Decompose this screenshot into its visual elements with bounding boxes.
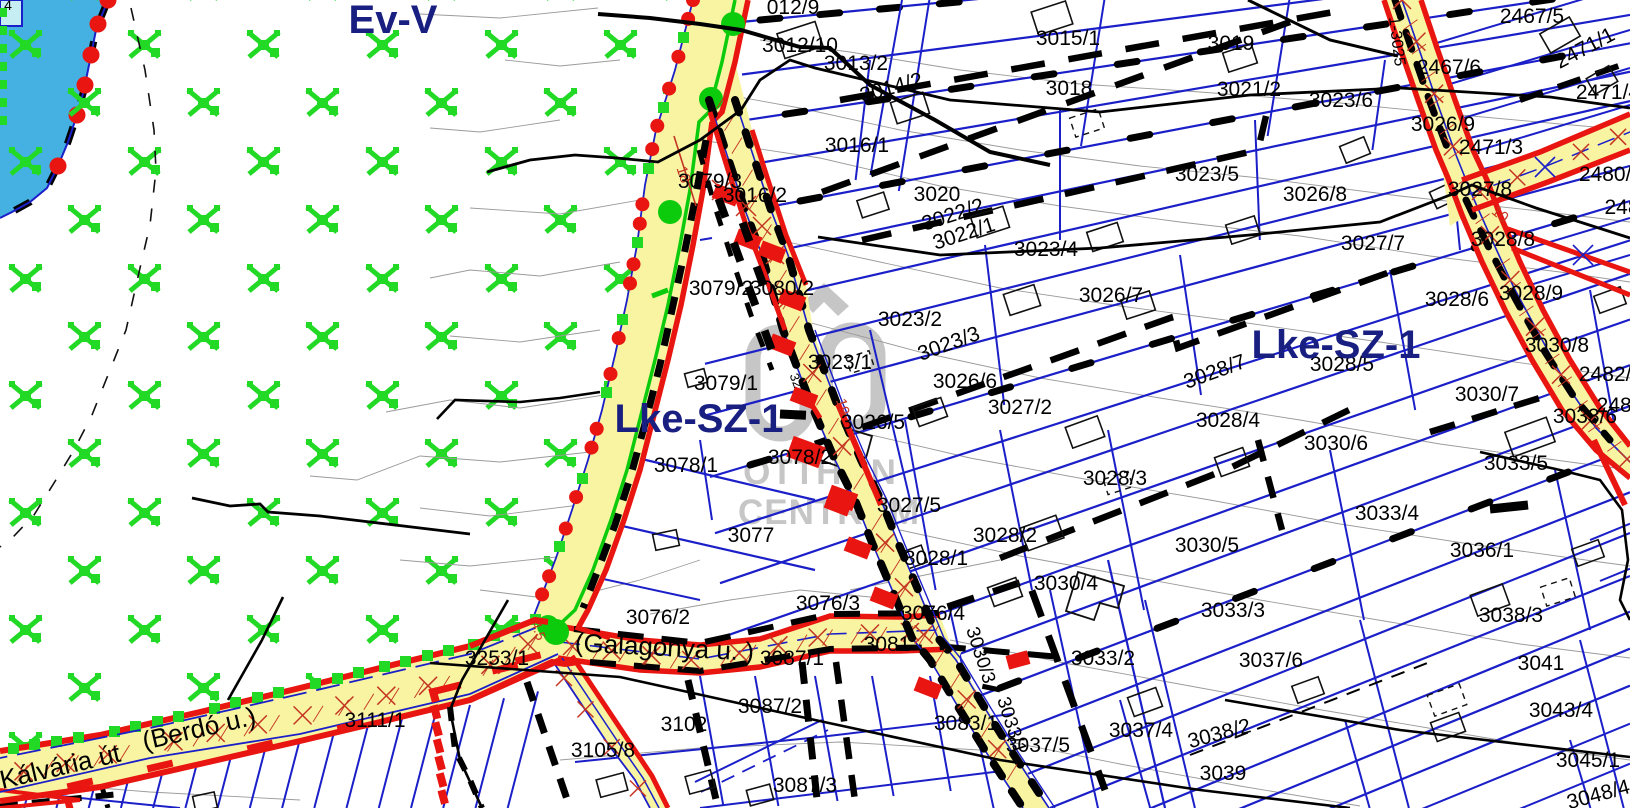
svg-text:3028/3: 3028/3 bbox=[1083, 467, 1147, 490]
svg-text:3083/1: 3083/1 bbox=[934, 712, 998, 735]
svg-text:3027/7: 3027/7 bbox=[1341, 232, 1405, 255]
svg-text:3028/4: 3028/4 bbox=[1196, 409, 1261, 432]
svg-text:3087/3: 3087/3 bbox=[773, 774, 837, 797]
svg-text:3021/2: 3021/2 bbox=[1217, 78, 1281, 101]
svg-text:3028/2: 3028/2 bbox=[973, 524, 1037, 547]
svg-text:3023/6: 3023/6 bbox=[1309, 89, 1373, 112]
svg-text:3077: 3077 bbox=[728, 524, 775, 547]
svg-text:3033/2: 3033/2 bbox=[1071, 647, 1135, 670]
svg-text:2471/3: 2471/3 bbox=[1459, 136, 1523, 159]
svg-text:3030/7: 3030/7 bbox=[1455, 383, 1519, 406]
svg-text:2467/6: 2467/6 bbox=[1417, 56, 1481, 79]
svg-text:3013/2: 3013/2 bbox=[824, 52, 888, 75]
svg-text:3030/5: 3030/5 bbox=[1175, 534, 1239, 557]
svg-text:2471/4: 2471/4 bbox=[1576, 81, 1630, 104]
svg-text:3078/1: 3078/1 bbox=[654, 454, 718, 477]
svg-text:3027/2: 3027/2 bbox=[988, 396, 1052, 419]
svg-text:3026/9: 3026/9 bbox=[1411, 113, 1475, 136]
svg-text:2467/5: 2467/5 bbox=[1500, 5, 1564, 28]
svg-text:3087/2: 3087/2 bbox=[738, 695, 802, 718]
svg-text:3016/1: 3016/1 bbox=[825, 134, 889, 157]
svg-text:3026/7: 3026/7 bbox=[1079, 284, 1143, 307]
svg-text:3081: 3081 bbox=[864, 633, 911, 656]
svg-text:3076/4: 3076/4 bbox=[901, 602, 966, 625]
svg-text:3030/4: 3030/4 bbox=[1034, 572, 1099, 595]
svg-text:Lke-SZ-1: Lke-SZ-1 bbox=[615, 397, 784, 441]
svg-text:3041: 3041 bbox=[1518, 652, 1565, 675]
svg-text:3026/5: 3026/5 bbox=[841, 411, 905, 434]
svg-text:4: 4 bbox=[4, 0, 12, 13]
svg-text:3028/6: 3028/6 bbox=[1425, 288, 1489, 311]
svg-text:012/9: 012/9 bbox=[767, 0, 820, 19]
svg-text:2480/4: 2480/4 bbox=[1579, 163, 1630, 186]
svg-text:Ev-V: Ev-V bbox=[349, 0, 438, 42]
svg-text:3033/3: 3033/3 bbox=[1201, 599, 1265, 622]
svg-text:3079/2: 3079/2 bbox=[689, 277, 753, 300]
svg-text:3105/8: 3105/8 bbox=[571, 739, 635, 762]
svg-text:3028/9: 3028/9 bbox=[1499, 282, 1563, 305]
svg-text:3028/1: 3028/1 bbox=[904, 547, 968, 570]
svg-text:Lke-SZ-1: Lke-SZ-1 bbox=[1252, 323, 1421, 367]
svg-text:3015/1: 3015/1 bbox=[1036, 27, 1100, 50]
svg-text:3023/1: 3023/1 bbox=[808, 351, 872, 374]
svg-text:2482/5: 2482/5 bbox=[1579, 363, 1630, 386]
svg-text:3023/4: 3023/4 bbox=[1014, 238, 1079, 261]
svg-text:3079/1: 3079/1 bbox=[694, 372, 758, 395]
svg-text:3033/4: 3033/4 bbox=[1355, 502, 1420, 525]
svg-text:3018: 3018 bbox=[1046, 77, 1093, 100]
svg-text:2484: 2484 bbox=[1597, 394, 1630, 417]
svg-text:3027/5: 3027/5 bbox=[877, 494, 941, 517]
svg-text:3111/1: 3111/1 bbox=[344, 709, 405, 732]
svg-text:3102: 3102 bbox=[661, 713, 708, 736]
svg-text:3027/8: 3027/8 bbox=[1448, 178, 1512, 201]
svg-text:3016/2: 3016/2 bbox=[723, 184, 787, 207]
svg-text:248: 248 bbox=[1604, 196, 1630, 219]
svg-text:3026/8: 3026/8 bbox=[1283, 183, 1347, 206]
svg-text:3030/8: 3030/8 bbox=[1525, 334, 1589, 357]
svg-text:3076/3: 3076/3 bbox=[796, 592, 860, 615]
svg-text:3023/5: 3023/5 bbox=[1175, 163, 1239, 186]
svg-text:3087/1: 3087/1 bbox=[760, 647, 824, 670]
svg-text:3037/5: 3037/5 bbox=[1006, 734, 1070, 757]
svg-text:3026/6: 3026/6 bbox=[933, 370, 997, 393]
svg-text:3045/1: 3045/1 bbox=[1556, 749, 1620, 772]
svg-text:3039: 3039 bbox=[1200, 762, 1247, 785]
svg-text:3033/5: 3033/5 bbox=[1484, 452, 1548, 475]
svg-text:3253/1: 3253/1 bbox=[465, 647, 529, 670]
svg-text:3043/4: 3043/4 bbox=[1529, 699, 1594, 722]
svg-text:3028/8: 3028/8 bbox=[1471, 228, 1535, 251]
svg-text:3023/2: 3023/2 bbox=[878, 308, 942, 331]
svg-text:3038/3: 3038/3 bbox=[1479, 604, 1543, 627]
svg-text:3076/2: 3076/2 bbox=[626, 606, 690, 629]
svg-text:3080/2: 3080/2 bbox=[750, 277, 814, 300]
svg-text:3037/6: 3037/6 bbox=[1239, 649, 1303, 672]
svg-text:3078/2: 3078/2 bbox=[768, 446, 832, 469]
svg-text:3030/6: 3030/6 bbox=[1304, 432, 1368, 455]
svg-text:3019: 3019 bbox=[1208, 32, 1255, 55]
svg-text:3037/4: 3037/4 bbox=[1109, 719, 1174, 742]
svg-text:3036/1: 3036/1 bbox=[1450, 539, 1514, 562]
